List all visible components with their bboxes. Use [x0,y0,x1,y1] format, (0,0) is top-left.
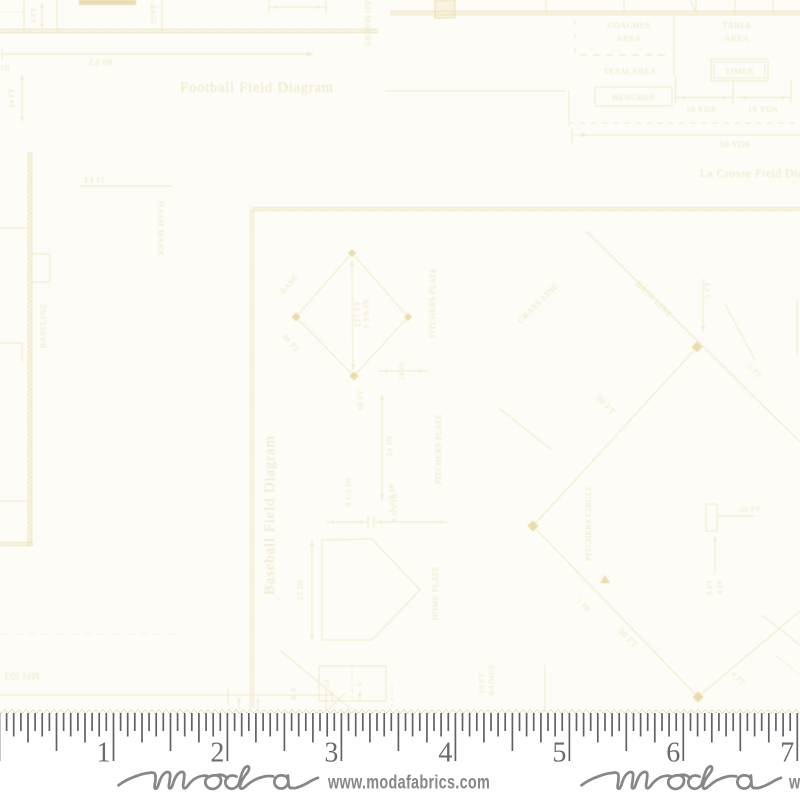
svg-text:HASH MARK: HASH MARK [156,201,166,257]
svg-text:24 IN: 24 IN [398,362,406,381]
svg-text:24 IN: 24 IN [385,436,394,457]
svg-text:5: 5 [552,738,566,769]
svg-text:K 9: K 9 [290,688,298,700]
svg-text:6: 6 [666,738,680,769]
svg-text:60 FT: 60 FT [88,57,112,67]
svg-text:PITCHERS PLATE: PITCHERS PLATE [434,414,443,485]
svg-text:www.modafabrics.com: www.modafabrics.com [788,770,800,793]
svg-text:10 YDS: 10 YDS [686,104,716,114]
svg-text:COACHES: COACHES [607,20,650,30]
svg-text:Baseball Field Diagram: Baseball Field Diagram [262,435,278,595]
svg-text:24: 24 [323,679,331,687]
svg-text:8 1/2 IN: 8 1/2 IN [390,493,399,522]
svg-text:HOME PLATE: HOME PLATE [431,566,440,621]
svg-text:18 FT: 18 FT [477,673,486,694]
svg-text:AREA: AREA [724,33,750,43]
svg-text:TIMER: TIMER [725,66,754,76]
svg-text:23 FT: 23 FT [150,4,158,24]
svg-text:MFI 353: MFI 353 [4,671,39,681]
svg-text:TEAM AREA: TEAM AREA [603,66,657,76]
svg-text:6: 6 [356,682,364,686]
svg-text:60 FT: 60 FT [356,390,365,411]
svg-text:7: 7 [780,738,794,769]
svg-text:RADIUS: RADIUS [487,665,496,696]
svg-text:TABLE: TABLE [722,20,751,30]
svg-text:14 FT: 14 FT [8,88,16,108]
svg-text:AREA: AREA [616,33,642,43]
svg-text:Football Field Diagram: Football Field Diagram [180,80,334,96]
svg-text:2: 2 [210,738,224,769]
svg-text:46 FT: 46 FT [740,505,761,514]
svg-text:PITCHERS PLATE: PITCHERS PLATE [428,268,437,339]
svg-text:La Crosse Field Diagram: La Crosse Field Diagram [700,168,800,180]
svg-text:4 FT: 4 FT [30,7,38,23]
svg-text:1: 1 [97,738,111,769]
svg-text:www.modafabrics.com: www.modafabrics.com [327,770,490,793]
svg-text:BASELINE: BASELINE [38,303,48,348]
svg-text:127 FT: 127 FT [353,301,362,327]
svg-text:5 FT: 5 FT [703,282,712,298]
svg-text:HASH MARKS: HASH MARKS [363,0,372,47]
svg-text:50 YDS: 50 YDS [720,139,750,149]
svg-text:3 3/8 IN: 3 3/8 IN [362,299,371,330]
svg-text:1H: 1H [0,64,10,72]
svg-text:PITCHERS CIRCLE: PITCHERS CIRCLE [584,485,593,561]
svg-text:5 FT: 5 FT [706,579,714,595]
svg-text:10 YDS: 10 YDS [748,104,778,114]
svg-text:14 FT: 14 FT [83,175,105,184]
svg-text:3: 3 [324,738,338,769]
svg-text:17 IN: 17 IN [296,580,305,601]
svg-text:BENCHES: BENCHES [612,92,654,102]
svg-text:4: 4 [438,738,452,769]
svg-text:8 1/2 IN: 8 1/2 IN [344,477,353,506]
svg-text:4 IN: 4 IN [716,580,724,595]
